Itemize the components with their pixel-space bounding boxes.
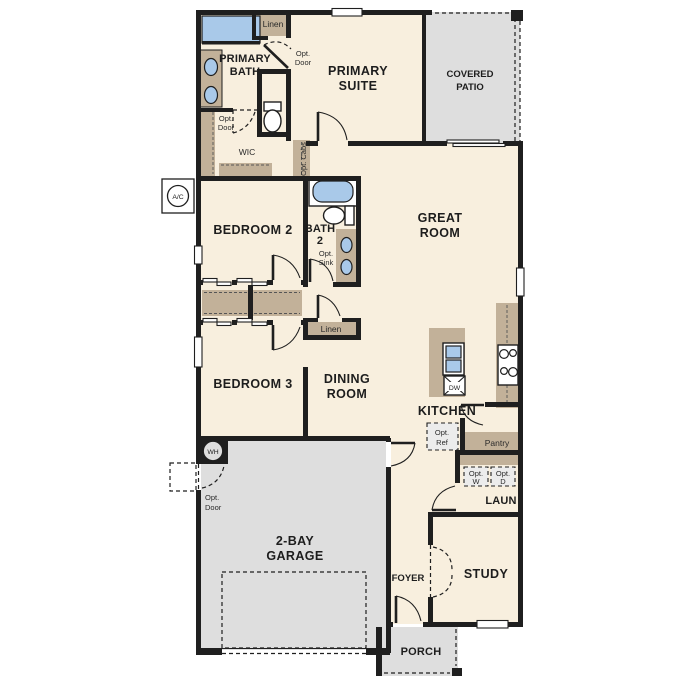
sink-icon <box>341 260 352 275</box>
sliding-door <box>217 282 231 286</box>
garage-label: GARAGE <box>266 549 323 563</box>
toilet-icon <box>324 207 345 224</box>
sliding-glass-door <box>447 140 499 143</box>
opt-door-label: Door <box>218 123 235 132</box>
opt-sink-label: Opt. <box>319 249 333 258</box>
kitchen-sink-basin <box>446 346 461 358</box>
opt-cabs-label: Opt. Cabs <box>299 142 308 176</box>
dining-room-label: DINING <box>324 372 370 386</box>
laundry-counter <box>460 455 523 465</box>
covered-patio-label: PATIO <box>456 82 484 93</box>
sliding-door <box>252 322 267 326</box>
opt-door-label: Opt. <box>205 493 219 502</box>
window <box>195 337 203 367</box>
sliding-glass-door <box>453 144 505 147</box>
bedroom-2-label: BEDROOM 2 <box>213 223 292 237</box>
floor-plan-svg: PRIMARY BATH PRIMARY SUITE COVERED PATIO… <box>0 0 687 687</box>
opt-door-label: Opt. <box>296 49 310 58</box>
toilet-icon <box>264 110 281 132</box>
sliding-door <box>237 279 252 283</box>
linen-label: Linen <box>263 19 284 29</box>
bathtub-basin <box>313 181 353 202</box>
water-heater-label: WH <box>207 449 218 456</box>
shower-fixture <box>202 16 260 43</box>
sink-icon <box>341 238 352 253</box>
linen-label: Linen <box>321 324 342 334</box>
sliding-door <box>217 322 231 326</box>
foyer-study-interior <box>391 438 518 624</box>
covered-patio-label: COVERED <box>447 69 494 80</box>
sliding-door <box>203 319 217 323</box>
opt-ref-label: Opt. <box>435 428 449 437</box>
ac-unit-label: A/C <box>172 194 183 201</box>
great-room-label: ROOM <box>420 226 461 240</box>
sliding-door <box>203 279 217 283</box>
opt-dryer-label: D <box>500 477 506 486</box>
opt-door-landing <box>170 463 196 491</box>
opt-washer-label: W <box>472 477 480 486</box>
foyer-label: FOYER <box>392 573 425 584</box>
window <box>332 9 362 17</box>
opt-door-label: Door <box>205 503 222 512</box>
sink-icon <box>205 87 218 104</box>
window <box>195 246 203 264</box>
kitchen-sink-basin <box>446 360 461 372</box>
great-room-label: GREAT <box>418 211 463 225</box>
primary-bath-label: BATH <box>230 66 261 78</box>
wic-label: WIC <box>239 147 256 157</box>
kitchen-label: KITCHEN <box>418 404 476 418</box>
shower-curb <box>202 41 260 45</box>
laundry-label: LAUN <box>485 495 516 507</box>
dining-room-label: ROOM <box>327 387 368 401</box>
opt-door-label: Door <box>295 58 312 67</box>
window <box>477 621 508 629</box>
sliding-door <box>252 282 267 286</box>
porch-label: PORCH <box>401 646 442 658</box>
primary-bath-label: PRIMARY <box>219 53 271 65</box>
study-label: STUDY <box>464 567 509 581</box>
window <box>517 268 525 296</box>
pantry-label: Pantry <box>485 438 510 448</box>
toilet-icon <box>345 206 354 225</box>
primary-suite-label: PRIMARY <box>328 64 388 78</box>
bath-2-label: BATH <box>305 223 336 235</box>
opt-ref-label: Ref <box>436 438 449 447</box>
dishwasher-label: DW <box>449 385 461 392</box>
bedroom-3-label: BEDROOM 3 <box>213 377 292 391</box>
garage-label: 2-BAY <box>276 534 315 548</box>
sliding-door <box>237 319 252 323</box>
bath-2-label: 2 <box>317 235 323 247</box>
opt-door-label: Opt. <box>219 114 233 123</box>
opt-sink-label: Sink <box>319 258 334 267</box>
sink-icon <box>205 59 218 76</box>
floor-plan-page: PRIMARY BATH PRIMARY SUITE COVERED PATIO… <box>0 0 687 687</box>
primary-suite-label: SUITE <box>339 79 378 93</box>
